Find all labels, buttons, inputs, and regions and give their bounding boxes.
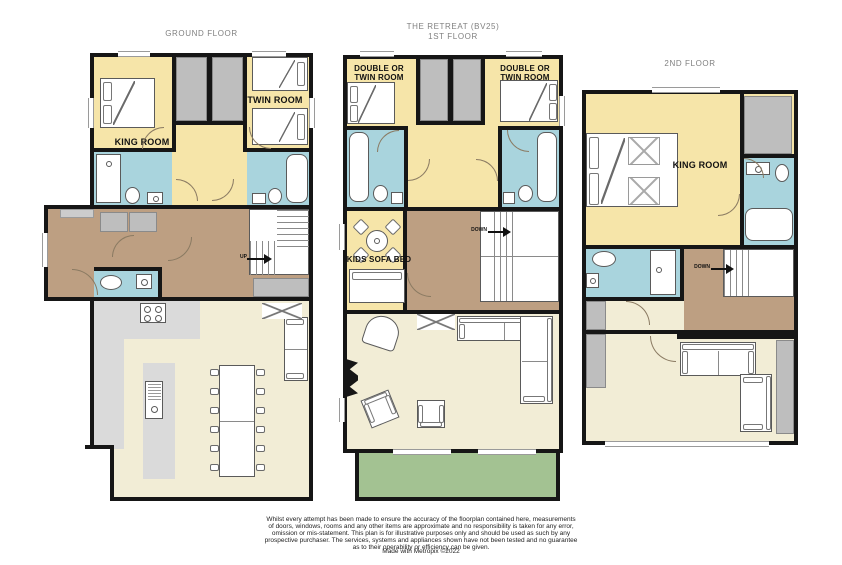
staircase-down xyxy=(480,211,559,302)
sofa-arm xyxy=(743,377,763,383)
double-door xyxy=(262,303,302,319)
chair-arm xyxy=(385,394,397,414)
sofa-arm xyxy=(523,396,545,402)
shower xyxy=(96,154,121,203)
pillow xyxy=(103,105,112,124)
stairs-down-arrow xyxy=(711,268,727,270)
bathtub xyxy=(349,132,369,202)
wall xyxy=(172,121,247,125)
chair xyxy=(385,219,402,236)
cushion-line xyxy=(285,349,307,350)
pillow xyxy=(297,114,305,140)
understairs-closet xyxy=(253,278,309,297)
armchair xyxy=(417,400,445,428)
window xyxy=(339,398,345,422)
pillow xyxy=(297,62,305,86)
credit-text: Made with Metropix ©2022 xyxy=(0,549,842,556)
burner xyxy=(144,306,151,313)
window xyxy=(559,96,565,126)
ground-hallway-block: UP xyxy=(44,205,313,301)
chair xyxy=(256,369,265,376)
stairs-up-arrow xyxy=(247,258,265,260)
bathtub xyxy=(537,132,557,202)
chair-arm xyxy=(418,405,423,423)
first-bedroom-block: DOUBLE OR TWIN ROOM DOUBLE OR TWIN ROOM xyxy=(343,55,563,211)
chair xyxy=(256,445,265,452)
window xyxy=(339,224,345,250)
chair xyxy=(210,369,219,376)
entrance-mat xyxy=(60,209,94,218)
sink xyxy=(136,274,152,289)
sink-basin xyxy=(590,278,596,284)
sink xyxy=(391,192,403,204)
cushion-line xyxy=(718,351,719,375)
pillow xyxy=(103,82,112,101)
chair xyxy=(210,445,219,452)
drainer xyxy=(148,384,161,400)
closet xyxy=(100,212,128,232)
bed-fold-line xyxy=(113,81,135,125)
sofa xyxy=(284,317,308,381)
first-floor-title: THE RETREAT (BV25) 1ST FLOOR xyxy=(343,22,563,43)
window xyxy=(393,449,451,455)
wall xyxy=(680,249,684,301)
wardrobe xyxy=(420,59,448,121)
bed-fold-line xyxy=(529,83,547,121)
bathtub xyxy=(745,208,793,241)
burner xyxy=(155,306,162,313)
wardrobe xyxy=(176,57,207,121)
chair xyxy=(256,426,265,433)
disclaimer-text: Whilst every attempt has been made to en… xyxy=(0,517,842,552)
window xyxy=(88,98,94,128)
bed-fold-line xyxy=(279,112,295,142)
wall xyxy=(481,59,485,125)
door-arc xyxy=(168,237,192,261)
sofa-arm xyxy=(682,351,688,374)
shower xyxy=(650,250,676,295)
burner xyxy=(144,315,151,322)
window xyxy=(478,449,536,455)
chair xyxy=(210,426,219,433)
shower-head xyxy=(106,161,112,167)
stair-divider xyxy=(481,256,558,257)
chair-back xyxy=(420,422,442,427)
window xyxy=(506,51,542,57)
window xyxy=(652,87,720,93)
second-middle-block: DOWN xyxy=(582,245,798,334)
sofa-arm xyxy=(748,351,754,374)
window xyxy=(252,51,286,57)
sofa xyxy=(680,342,756,376)
chair xyxy=(210,464,219,471)
door-arc xyxy=(212,179,234,201)
chair xyxy=(353,219,370,236)
table-center xyxy=(374,238,380,244)
eaves-storage xyxy=(586,301,606,330)
eaves-storage xyxy=(776,340,794,434)
eaves-storage xyxy=(586,334,606,388)
cushion-line xyxy=(504,323,505,340)
chair xyxy=(256,407,265,414)
pillow xyxy=(549,84,557,101)
door-arc xyxy=(112,235,134,257)
door-arc xyxy=(476,159,498,181)
island-sink-unit xyxy=(145,381,163,419)
pillow xyxy=(589,173,599,205)
double-door xyxy=(417,314,455,330)
floorplan-page: { "palette": { "wall": "#161616", "bedro… xyxy=(0,0,842,565)
window xyxy=(42,233,48,267)
chair-arm xyxy=(439,405,444,423)
stairs-down-label: DOWN xyxy=(465,227,487,233)
dining-table xyxy=(219,365,255,477)
landing xyxy=(480,302,559,310)
stove xyxy=(140,303,166,323)
bed-fold-line xyxy=(279,60,295,88)
sofa-arm xyxy=(286,373,304,379)
pillow xyxy=(350,105,358,122)
corner-sofa-vertical xyxy=(520,316,553,404)
king-room-label: KING ROOM xyxy=(662,160,738,170)
wardrobe xyxy=(453,59,481,121)
second-king-block: KING ROOM xyxy=(582,90,798,249)
door-arc xyxy=(249,127,271,149)
armchair xyxy=(361,312,403,353)
quilt xyxy=(628,177,660,205)
second-floor-title: 2ND FLOOR xyxy=(582,59,798,69)
wall xyxy=(110,445,114,501)
double-bed xyxy=(100,78,155,128)
staircase-up xyxy=(249,209,309,275)
door-arc xyxy=(718,194,740,216)
table-divider xyxy=(220,421,254,422)
sink-basin xyxy=(141,279,148,286)
toilet xyxy=(775,164,789,182)
sofa-bed xyxy=(349,269,405,303)
first-middle-block: DOWN KIDS SOFA BED xyxy=(343,207,563,314)
sofa-back xyxy=(766,376,771,430)
shower-head xyxy=(656,267,662,273)
wall xyxy=(416,121,485,125)
door-arc xyxy=(142,127,164,149)
window xyxy=(309,98,315,128)
sink-basin xyxy=(153,196,159,202)
toilet xyxy=(592,251,616,267)
single-bed xyxy=(252,57,308,91)
double-bed xyxy=(500,80,558,122)
sofa-back xyxy=(547,318,552,402)
sink-basin xyxy=(151,406,158,413)
ground-floor-title: GROUND FLOOR xyxy=(90,29,313,39)
window xyxy=(605,441,769,447)
window xyxy=(360,51,394,57)
bed-fold-line xyxy=(358,85,376,123)
burner xyxy=(155,315,162,322)
first-living-block xyxy=(343,310,563,453)
door-arc xyxy=(650,336,676,362)
kitchen-counter xyxy=(94,301,124,449)
chair-back xyxy=(364,392,388,406)
sofa-arm xyxy=(743,424,763,430)
sink xyxy=(252,193,266,204)
stair-treads xyxy=(277,210,309,248)
ground-bedroom-block: KING ROOM TWIN ROOM xyxy=(90,53,313,209)
sink xyxy=(147,192,163,204)
armchair xyxy=(360,389,399,428)
pillow xyxy=(350,86,358,103)
cushion-line xyxy=(522,361,547,362)
quilt xyxy=(628,137,660,165)
double-bed xyxy=(347,82,395,124)
chair xyxy=(210,407,219,414)
double-room-left-label: DOUBLE OR TWIN ROOM xyxy=(347,64,411,82)
closet xyxy=(129,212,157,232)
sofa-arm xyxy=(459,324,465,339)
sofa-back xyxy=(352,272,402,280)
toilet xyxy=(268,188,282,204)
ground-kitchen-block xyxy=(90,297,313,501)
kids-sofa-bed-label: KIDS SOFA BED xyxy=(345,255,413,264)
fireplace xyxy=(343,358,358,398)
chair xyxy=(256,388,265,395)
window xyxy=(118,51,150,57)
pillow xyxy=(549,103,557,120)
stairs-up-label: UP xyxy=(231,254,247,260)
toilet xyxy=(518,185,533,202)
pillow xyxy=(589,137,599,169)
door-arc xyxy=(408,159,430,181)
balcony xyxy=(355,449,560,501)
chair-arm xyxy=(363,403,375,423)
bathtub xyxy=(286,154,308,203)
building-notch xyxy=(85,449,110,502)
toilet xyxy=(100,275,122,290)
door-arc xyxy=(176,179,198,201)
stairs-down-label: DOWN xyxy=(688,264,710,270)
toilet xyxy=(125,187,140,204)
round-table xyxy=(366,230,388,252)
sofa-back xyxy=(682,344,754,350)
landing xyxy=(407,211,480,310)
sofa xyxy=(740,374,772,432)
twin-room-label: TWIN ROOM xyxy=(240,95,310,105)
chair xyxy=(210,388,219,395)
sink xyxy=(503,192,515,204)
closet xyxy=(744,96,792,154)
chair xyxy=(256,464,265,471)
second-sitting-block xyxy=(582,330,798,445)
wall xyxy=(677,334,794,339)
stairs-down-arrow xyxy=(488,231,504,233)
sofa-arm xyxy=(286,319,304,325)
toilet xyxy=(373,185,388,202)
wall xyxy=(158,267,162,297)
sink xyxy=(586,273,599,288)
bed-fold-line xyxy=(601,138,625,204)
wardrobe xyxy=(212,57,243,121)
